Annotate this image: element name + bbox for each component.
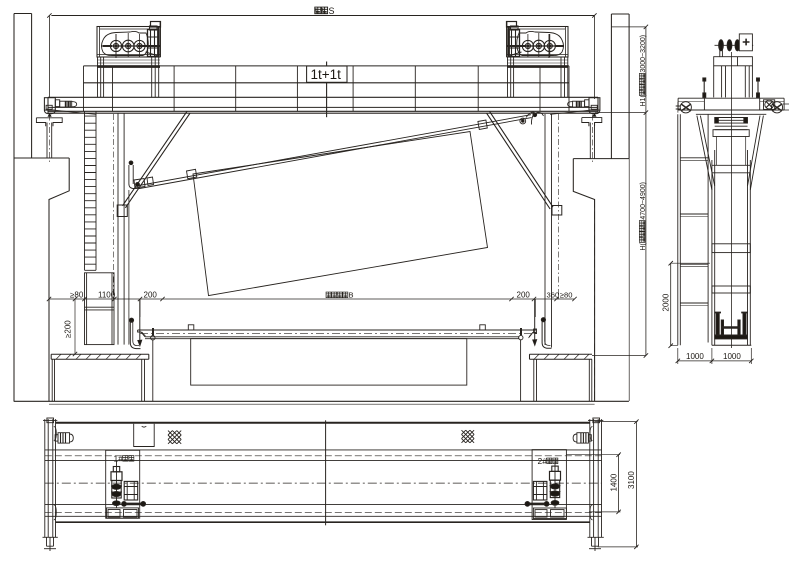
svg-text:200: 200 xyxy=(144,291,158,300)
svg-text:3000~3200): 3000~3200) xyxy=(640,35,647,73)
svg-text:≥80: ≥80 xyxy=(70,291,84,300)
svg-text:1t+1t: 1t+1t xyxy=(311,67,342,82)
svg-text:2#: 2# xyxy=(538,456,548,466)
svg-text:1100: 1100 xyxy=(98,291,116,300)
svg-text:H1(: H1( xyxy=(640,95,647,107)
svg-text:360: 360 xyxy=(547,291,560,300)
svg-text:4700~4900): 4700~4900) xyxy=(640,182,647,220)
svg-text:S: S xyxy=(329,6,335,16)
svg-text:H(: H( xyxy=(640,243,647,251)
svg-text:2000: 2000 xyxy=(661,293,670,311)
svg-text:B: B xyxy=(349,290,354,299)
svg-text:3100: 3100 xyxy=(627,471,636,489)
svg-text:1000: 1000 xyxy=(723,352,741,361)
svg-text:≥200: ≥200 xyxy=(64,320,73,338)
svg-text:1#: 1# xyxy=(114,454,124,464)
svg-text:1400: 1400 xyxy=(610,473,619,491)
svg-text:1000: 1000 xyxy=(686,352,704,361)
svg-text:200: 200 xyxy=(517,291,531,300)
svg-text:≥80: ≥80 xyxy=(560,291,573,300)
